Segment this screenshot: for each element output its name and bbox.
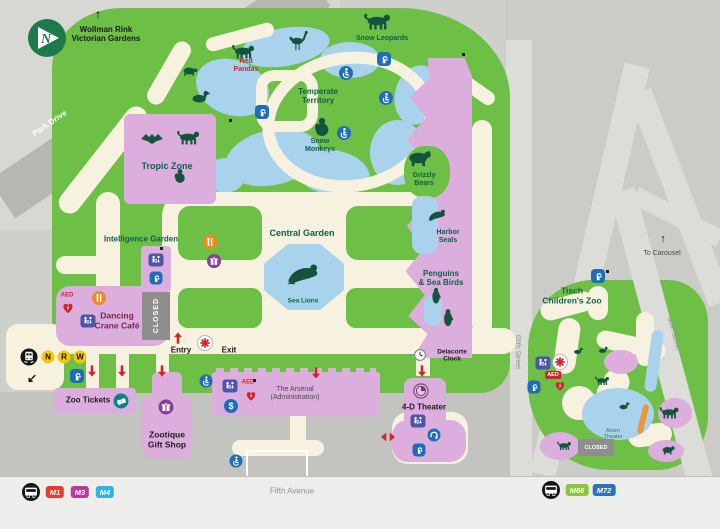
compass-rose: N: [28, 19, 66, 57]
drinking-fountain-icon: [70, 369, 84, 383]
food-icon: [92, 291, 106, 305]
subway-line-r: R: [58, 351, 71, 364]
tisch-childrens-zoo-label: Tisch Children's Zoo: [542, 286, 601, 305]
duck-silhouette: [618, 402, 630, 411]
street-65-label: 65th Street: [513, 335, 521, 369]
drinking-fountain-icon: [377, 52, 391, 66]
goat-silhouette: [556, 441, 572, 451]
map-dot: [229, 119, 232, 122]
gate-arrow-icon: [158, 365, 166, 377]
dollar-glyph: $: [228, 401, 233, 411]
closed-label: CLOSED: [153, 298, 160, 333]
drinking-fountain-icon: [255, 105, 269, 119]
map-dot: [160, 247, 163, 250]
entry-arrow-icon: [174, 332, 182, 344]
sea-lions-label: Sea Lions: [288, 297, 319, 304]
childrens-zoo-structure: [604, 350, 638, 374]
goose-silhouette: [190, 90, 210, 105]
compass-n: N: [40, 32, 52, 47]
snow-monkey-silhouette: [313, 117, 331, 137]
aed-label: AED: [547, 372, 559, 378]
penguin-silhouette: [431, 288, 441, 305]
entry-label: Entry: [171, 347, 191, 356]
exit-star-icon: [197, 335, 213, 351]
temperate-territory-label: Temperate Territory: [298, 88, 338, 106]
line-letter: R: [61, 353, 67, 362]
tickets-icon: [114, 394, 129, 409]
exit-star-icon: [552, 354, 568, 370]
sheep-silhouette: [660, 445, 676, 455]
accessibility-icon: [230, 455, 243, 468]
bus-icon: [22, 483, 40, 501]
gate-arrow-icon: [88, 365, 96, 377]
route-label: M72: [597, 486, 612, 495]
drinking-fountain-icon: [413, 444, 426, 457]
acorn-theater-label: Acorn Theater: [604, 428, 623, 440]
grizzly-bears-label: Grizzly Bears: [413, 172, 436, 188]
map-dot: [606, 270, 609, 273]
moose-silhouette: [658, 406, 680, 420]
two-way-arrow-icon: [381, 433, 395, 442]
route-label: M4: [100, 488, 110, 497]
penguin-silhouette: [443, 309, 454, 327]
garden-quadrant: [178, 206, 262, 260]
bus-icon: [542, 481, 560, 499]
line-letter: W: [76, 353, 84, 362]
gate-arrow-icon: [312, 367, 320, 379]
closed-label: CLOSED: [585, 445, 608, 451]
map-dot: [462, 53, 465, 56]
snow-leopards-label: Snow Leopards: [356, 35, 408, 43]
turtle-silhouette: [182, 66, 198, 76]
clock-arrow-icon: [418, 365, 426, 377]
harbor-seal-silhouette: [427, 209, 447, 222]
tropic-zone-building: [124, 114, 216, 204]
closed-exhibit-banner: CLOSED: [142, 292, 170, 340]
harbor-seal-pool: [412, 196, 438, 254]
accessibility-icon: [337, 126, 351, 140]
accessibility-icon: [200, 375, 213, 388]
aed-label: AED: [61, 293, 74, 300]
crane-silhouette: [288, 30, 310, 52]
harbor-seals-label: Harbor Seals: [437, 229, 460, 245]
snow-leopard-silhouette: [362, 13, 392, 32]
central-park-zoo-map: CLOSED CLOSED N: [0, 0, 720, 529]
bird-silhouette: [573, 347, 584, 355]
accessibility-icon: [379, 91, 393, 105]
route-label: M66: [570, 486, 585, 495]
drinking-fountain-icon: [528, 381, 541, 394]
bus-route-m3: M3: [71, 486, 89, 498]
aed-heart-icon: [554, 381, 566, 392]
garden-quadrant: [178, 288, 262, 328]
tropic-zone-label: Tropic Zone: [141, 161, 192, 171]
aed-heart-icon: [245, 391, 257, 402]
gift-shop-icon: [159, 400, 174, 415]
closed-childrens-banner: CLOSED: [578, 439, 614, 456]
delacorte-clock-icon: [414, 349, 427, 362]
delacorte-clock-label: Delacorte Clock: [437, 349, 467, 364]
red-pandas-label: Red Pandas: [234, 58, 259, 74]
aed-heart-icon: [62, 302, 75, 314]
accessibility-icon: [339, 66, 353, 80]
deer-silhouette: [594, 376, 610, 386]
route-label: M3: [75, 488, 85, 497]
lemur-silhouette: [175, 130, 201, 146]
west-connector-path: [56, 256, 104, 274]
subway-line-n: N: [42, 351, 55, 364]
gift-shop-icon: [207, 254, 221, 268]
subway-icon: [21, 349, 38, 366]
sea-lion-silhouette: [285, 263, 321, 286]
arsenal-label: The Arsenal (Administration): [270, 386, 319, 402]
restroom-icon: [411, 415, 426, 428]
restroom-icon: [536, 357, 551, 370]
dancing-crane-label: Dancing Crane Café: [95, 311, 140, 330]
food-icon: [203, 235, 217, 249]
zoo-tickets-label: Zoo Tickets: [66, 397, 110, 406]
bus-route-m4: M4: [96, 486, 114, 498]
atm-icon: $: [224, 399, 238, 413]
carousel-arrow-icon: ↑: [660, 233, 666, 245]
zootique-label: Zootique Gift Shop: [148, 430, 186, 449]
restroom-icon: [81, 315, 96, 328]
bat-silhouette: [140, 133, 164, 145]
route-label: M1: [50, 488, 60, 497]
bird-silhouette: [598, 346, 609, 354]
aed-badge: AED: [545, 371, 561, 379]
line-letter: N: [45, 353, 51, 362]
snow-monkeys-label: Snow Monkeys: [305, 138, 335, 154]
subway-line-w: W: [74, 351, 87, 364]
intelligence-garden-label: Intelligence Garden: [104, 236, 178, 245]
map-dot: [253, 379, 256, 382]
restroom-icon: [223, 380, 238, 393]
bus-route-m1: M1: [46, 486, 64, 498]
southwest-arrow-icon: ↙: [27, 371, 37, 385]
gate-arrow-icon: [118, 365, 126, 377]
wollman-rink-label: Wollman Rink Victorian Gardens: [72, 26, 141, 44]
grizzly-bear-silhouette: [406, 149, 432, 167]
wollman-arrow-icon: ↑: [95, 7, 102, 22]
ramp-icon: [428, 429, 441, 442]
to-carousel-label: To Carousel: [643, 250, 680, 258]
restroom-icon: [149, 254, 164, 267]
bus-route-m72: M72: [593, 484, 616, 496]
theater-4d-label: 4-D Theater: [402, 404, 446, 413]
penguins-label: Penguins & Sea Birds: [419, 270, 464, 288]
drinking-fountain-icon: [591, 269, 605, 283]
drinking-fountain-icon: [150, 272, 163, 285]
east-path: [472, 120, 492, 335]
service-area-outline: [246, 450, 308, 478]
theater-icon: [413, 383, 429, 399]
bus-route-m66: M66: [566, 484, 589, 496]
central-garden-label: Central Garden: [269, 228, 334, 238]
exit-label: Exit: [222, 347, 237, 356]
fifth-avenue-label: Fifth Avenue: [270, 488, 314, 497]
